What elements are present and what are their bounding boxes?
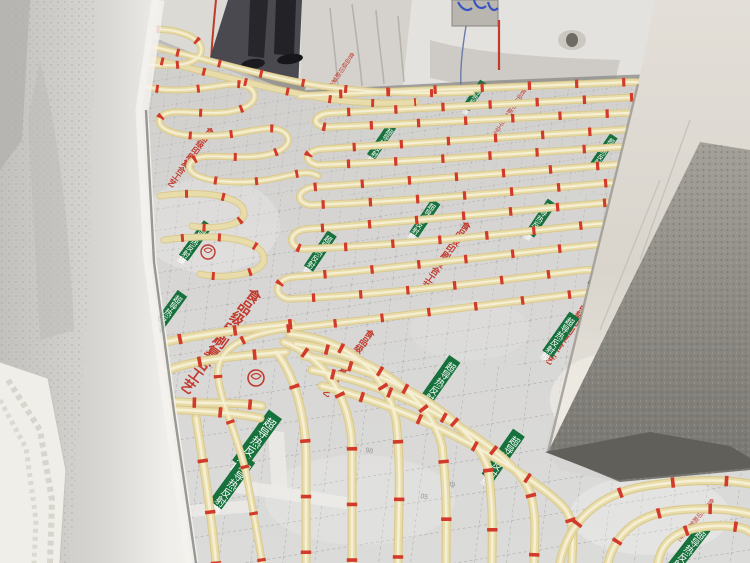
photo-underfloor-heating: 食品级印刷复合工艺 食品级印刷复合工艺 食品级印刷复合工艺 食品级印刷复合工艺 … xyxy=(0,0,750,563)
scene-canvas: 食品级印刷复合工艺 食品级印刷复合工艺 食品级印刷复合工艺 食品级印刷复合工艺 … xyxy=(0,0,750,563)
right-leg xyxy=(274,0,296,56)
wall-hole xyxy=(566,33,578,47)
